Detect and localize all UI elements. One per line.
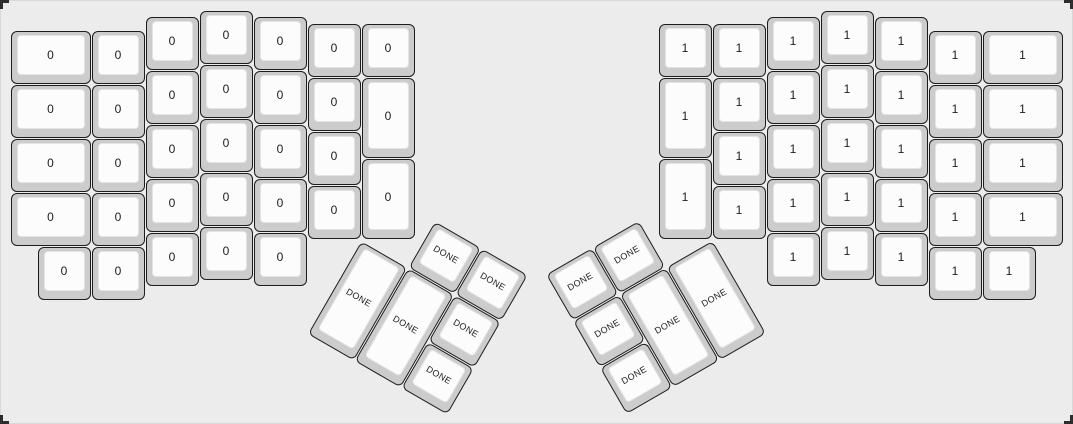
key-1[interactable]: 1	[766, 179, 820, 233]
key-label: 1	[898, 89, 905, 101]
keycap-base: 0	[146, 71, 199, 124]
key-label: 0	[277, 143, 284, 155]
key-label: 1	[790, 143, 797, 155]
key-label: 1	[682, 110, 689, 122]
keycap-base: 1	[875, 17, 928, 70]
key-label: 1	[790, 89, 797, 101]
keycap-base: 1	[875, 233, 928, 286]
keycap-top-surface: 1	[881, 75, 922, 115]
key-label: 0	[331, 150, 338, 162]
key-label: 0	[115, 211, 122, 223]
key-0[interactable]: 0	[253, 179, 307, 233]
key-label: 1	[1019, 103, 1026, 115]
keycap-top-surface: 1	[719, 136, 760, 176]
key-label: 1	[844, 83, 851, 95]
keycap-top-surface: 1	[665, 28, 706, 68]
key-1[interactable]: 1	[712, 132, 766, 186]
keycap-top-surface: 1	[935, 35, 976, 75]
key-0[interactable]: 0	[361, 159, 415, 240]
key-label: DONE	[391, 314, 419, 336]
keycap-base: 1	[821, 11, 874, 64]
key-0[interactable]: 0	[10, 84, 91, 138]
keycap-base: 1	[983, 31, 1063, 84]
keycap-base: 1	[875, 125, 928, 178]
key-label: 0	[115, 265, 122, 277]
keycap-base: 1	[713, 78, 766, 131]
keycap-top-surface: 1	[773, 21, 814, 61]
key-1[interactable]: 1	[820, 10, 874, 64]
keycap-top-surface: 0	[260, 75, 301, 115]
key-0[interactable]: 0	[307, 186, 361, 240]
key-label: DONE	[432, 244, 460, 266]
keycap-top-surface: 0	[260, 21, 301, 61]
key-0[interactable]: 0	[253, 125, 307, 179]
keycap-base: 0	[11, 85, 91, 138]
corner-mark-top-right	[1064, 0, 1073, 9]
keycap-top-surface: 0	[152, 129, 193, 169]
key-label: 1	[952, 103, 959, 115]
keycap-top-surface: 0	[368, 28, 409, 68]
key-1[interactable]: 1	[820, 64, 874, 118]
key-label: 1	[736, 150, 743, 162]
key-1[interactable]: 1	[982, 192, 1063, 246]
keycap-top-surface: 0	[206, 69, 247, 109]
key-label: 1	[736, 204, 743, 216]
keycap-base: 1	[929, 139, 982, 192]
key-label: 1	[1019, 211, 1026, 223]
key-label: 1	[790, 197, 797, 209]
key-label: 1	[1006, 265, 1013, 277]
key-label: DONE	[478, 271, 506, 293]
keycap-base: 0	[200, 11, 253, 64]
key-label: 0	[385, 110, 392, 122]
key-1[interactable]: 1	[712, 24, 766, 78]
key-label: 1	[682, 191, 689, 203]
keycap-top-surface: 0	[314, 28, 355, 68]
key-1[interactable]: 1	[766, 125, 820, 179]
key-label: 1	[790, 35, 797, 47]
keycap-top-surface: 0	[206, 231, 247, 271]
key-label: 1	[952, 157, 959, 169]
keycap-base: 1	[767, 125, 820, 178]
keycap-base: 1	[767, 233, 820, 286]
keycap-top-surface: 1	[773, 237, 814, 277]
key-label: 1	[898, 143, 905, 155]
keycap-top-surface: 1	[881, 21, 922, 61]
key-0[interactable]: 0	[91, 192, 145, 246]
keycap-top-surface: 1	[935, 251, 976, 291]
keycap-top-surface: 1	[773, 75, 814, 115]
keycap-top-surface: 0	[152, 75, 193, 115]
key-label: 1	[844, 29, 851, 41]
key-label: DONE	[566, 271, 594, 293]
keycap-base: 0	[146, 233, 199, 286]
key-0[interactable]: 0	[199, 172, 253, 226]
keycap-base: 0	[92, 247, 145, 300]
key-label: 0	[223, 83, 230, 95]
keycap-base: 0	[362, 78, 415, 158]
keycap-base: 0	[92, 31, 145, 84]
keycap-base: 0	[254, 125, 307, 178]
keycap-top-surface: 0	[260, 129, 301, 169]
keycap-top-surface: 1	[989, 89, 1057, 129]
keycap-base: 1	[929, 85, 982, 138]
key-label: DONE	[653, 314, 681, 336]
keycap-base: 1	[821, 227, 874, 280]
key-1[interactable]: 1	[658, 78, 712, 159]
keycap-top-surface: 1	[773, 129, 814, 169]
key-0[interactable]: 0	[145, 179, 199, 233]
key-1[interactable]: 1	[820, 118, 874, 172]
key-label: 0	[47, 49, 54, 61]
keycap-top-surface: 1	[989, 197, 1057, 237]
key-label: 0	[169, 251, 176, 263]
keycap-top-surface: 0	[206, 15, 247, 55]
key-label: 0	[169, 89, 176, 101]
key-1[interactable]: 1	[874, 233, 928, 287]
keycap-base: 1	[875, 71, 928, 124]
key-1[interactable]: 1	[712, 186, 766, 240]
key-0[interactable]: 0	[91, 30, 145, 84]
key-1[interactable]: 1	[928, 138, 982, 192]
keycap-base: 1	[713, 186, 766, 239]
keycap-top-surface: 1	[935, 89, 976, 129]
keycap-base: 0	[92, 85, 145, 138]
keycap-top-surface: DONE	[465, 254, 521, 309]
keycap-base: 1	[821, 119, 874, 172]
key-0[interactable]: 0	[37, 246, 91, 300]
key-0[interactable]: 0	[307, 78, 361, 132]
keycap-base: 0	[308, 132, 361, 185]
key-1[interactable]: 1	[874, 71, 928, 125]
keycap-top-surface: 0	[98, 197, 139, 237]
keycap-top-surface: 0	[152, 21, 193, 61]
keycap-top-surface: 1	[935, 143, 976, 183]
key-0[interactable]: 0	[145, 17, 199, 71]
key-label: 1	[790, 251, 797, 263]
keycap-top-surface: 1	[935, 197, 976, 237]
key-0[interactable]: 0	[145, 233, 199, 287]
key-0[interactable]: 0	[199, 10, 253, 64]
keycap-base: 1	[659, 159, 712, 239]
key-label: 0	[385, 191, 392, 203]
keycap-top-surface: 1	[827, 177, 868, 217]
key-label: 1	[736, 96, 743, 108]
key-label: 0	[115, 49, 122, 61]
key-label: 0	[223, 245, 230, 257]
keycap-base: 1	[767, 179, 820, 232]
keycap-top-surface: 1	[827, 123, 868, 163]
key-0[interactable]: 0	[253, 71, 307, 125]
key-label: 0	[223, 29, 230, 41]
keycap-base: 1	[929, 31, 982, 84]
key-label: DONE	[593, 317, 621, 339]
keycap-top-surface: 0	[152, 237, 193, 277]
key-0[interactable]: 0	[10, 30, 91, 84]
keycap-top-surface: 0	[98, 251, 139, 291]
keycap-top-surface: 0	[44, 251, 85, 291]
key-label: 0	[277, 35, 284, 47]
keycap-base: 0	[362, 159, 415, 239]
key-0[interactable]: 0	[91, 84, 145, 138]
key-1[interactable]: 1	[982, 138, 1063, 192]
key-0[interactable]: 0	[10, 192, 91, 246]
key-0[interactable]: 0	[10, 138, 91, 192]
keycap-base: 0	[38, 247, 91, 300]
keycap-top-surface: 0	[98, 89, 139, 129]
keycap-top-surface: 0	[368, 163, 409, 230]
keycap-base: 1	[929, 247, 982, 300]
key-label: 1	[952, 265, 959, 277]
key-0[interactable]: 0	[91, 246, 145, 300]
keycap-top-surface: 1	[881, 237, 922, 277]
keycap-base: 1	[983, 247, 1036, 300]
keycap-top-surface: 1	[881, 183, 922, 223]
key-label: 0	[61, 265, 68, 277]
keycap-base: 0	[146, 17, 199, 70]
keycap-top-surface: 0	[206, 123, 247, 163]
keycap-top-surface: 0	[314, 82, 355, 122]
keycap-base: 0	[308, 186, 361, 239]
keycap-base: 0	[254, 233, 307, 286]
keycap-top-surface: 0	[314, 136, 355, 176]
keycap-top-surface: 0	[260, 237, 301, 277]
key-label: 1	[898, 35, 905, 47]
keycap-base: 0	[11, 139, 91, 192]
key-1[interactable]: 1	[658, 159, 712, 240]
keycap-base: 0	[200, 173, 253, 226]
keycap-base: 1	[875, 179, 928, 232]
key-label: 1	[898, 197, 905, 209]
keycap-base: 1	[659, 78, 712, 158]
keycap-top-surface: 0	[260, 183, 301, 223]
key-0[interactable]: 0	[307, 24, 361, 78]
key-0[interactable]: 0	[307, 132, 361, 186]
key-0[interactable]: 0	[199, 118, 253, 172]
keycap-base: 0	[308, 24, 361, 77]
corner-mark-bottom-right	[1064, 415, 1073, 424]
keycap-top-surface: 1	[827, 69, 868, 109]
key-1[interactable]: 1	[982, 246, 1036, 300]
keycap-top-surface: 1	[665, 163, 706, 230]
keycap-top-surface: 1	[719, 190, 760, 230]
key-1[interactable]: 1	[712, 78, 766, 132]
keycap-base: 1	[713, 24, 766, 77]
key-1[interactable]: 1	[928, 246, 982, 300]
key-label: 0	[47, 157, 54, 169]
keycap-top-surface: 1	[773, 183, 814, 223]
key-0[interactable]: 0	[361, 24, 415, 78]
keycap-base: 1	[767, 17, 820, 70]
key-label: 0	[385, 42, 392, 54]
keycap-base: 1	[821, 173, 874, 226]
keycap-top-surface: DONE	[599, 227, 655, 282]
key-label: 1	[844, 137, 851, 149]
key-label: 0	[223, 137, 230, 149]
keycap-base: 0	[362, 24, 415, 77]
keycap-top-surface: 0	[206, 177, 247, 217]
key-1[interactable]: 1	[820, 172, 874, 226]
keycap-top-surface: 0	[314, 190, 355, 230]
key-0[interactable]: 0	[199, 64, 253, 118]
keycap-base: 1	[659, 24, 712, 77]
corner-mark-bottom-left	[0, 415, 9, 424]
keycap-top-surface: 1	[989, 251, 1030, 291]
key-label: 0	[47, 103, 54, 115]
key-1[interactable]: 1	[982, 84, 1063, 138]
key-1[interactable]: 1	[820, 226, 874, 280]
keycap-base: 1	[983, 139, 1063, 192]
key-label: 1	[952, 49, 959, 61]
keycap-top-surface: 1	[827, 231, 868, 271]
keycap-top-surface: 1	[719, 82, 760, 122]
keycap-top-surface: 0	[98, 35, 139, 75]
key-label: 0	[169, 35, 176, 47]
key-label: 0	[115, 103, 122, 115]
key-0[interactable]: 0	[145, 125, 199, 179]
keycap-base: 0	[92, 139, 145, 192]
key-label: DONE	[344, 287, 372, 309]
keycap-top-surface: 0	[17, 35, 85, 75]
key-1[interactable]: 1	[874, 17, 928, 71]
key-label: 0	[169, 143, 176, 155]
key-1[interactable]: 1	[928, 30, 982, 84]
keycap-base: 0	[200, 119, 253, 172]
key-label: 0	[115, 157, 122, 169]
keycap-top-surface: 0	[152, 183, 193, 223]
key-0[interactable]: 0	[361, 78, 415, 159]
keycap-base: 0	[200, 227, 253, 280]
keycap-base: 0	[254, 17, 307, 70]
key-1[interactable]: 1	[766, 71, 820, 125]
keyboard-canvas: 00000000000000000000000000000000DONEDONE…	[0, 0, 1073, 424]
key-label: 1	[952, 211, 959, 223]
keycap-top-surface: 1	[989, 35, 1057, 75]
key-0[interactable]: 0	[199, 226, 253, 280]
keycap-base: 1	[983, 193, 1063, 246]
keycap-base: 1	[929, 193, 982, 246]
key-label: 0	[277, 89, 284, 101]
key-label: DONE	[424, 364, 452, 386]
key-label: 0	[277, 251, 284, 263]
key-label: 1	[1019, 49, 1026, 61]
key-label: 1	[1019, 157, 1026, 169]
keycap-base: 0	[146, 179, 199, 232]
keycap-base: 0	[92, 193, 145, 246]
key-label: 1	[682, 42, 689, 54]
key-1[interactable]: 1	[766, 17, 820, 71]
key-1[interactable]: 1	[928, 192, 982, 246]
key-0[interactable]: 0	[145, 71, 199, 125]
key-label: DONE	[613, 244, 641, 266]
key-0[interactable]: 0	[91, 138, 145, 192]
keycap-top-surface: 1	[881, 129, 922, 169]
key-1[interactable]: 1	[874, 125, 928, 179]
keycap-top-surface: 0	[17, 89, 85, 129]
keycap-base: 1	[821, 65, 874, 118]
keycap-base: 0	[200, 65, 253, 118]
key-label: 0	[331, 96, 338, 108]
key-label: 1	[736, 42, 743, 54]
keycap-top-surface: 0	[17, 143, 85, 183]
keycap-base: 0	[254, 179, 307, 232]
keycap-base: 0	[308, 78, 361, 131]
key-1[interactable]: 1	[874, 179, 928, 233]
key-label: 0	[47, 211, 54, 223]
key-1[interactable]: 1	[766, 233, 820, 287]
key-label: 0	[331, 42, 338, 54]
key-label: DONE	[451, 317, 479, 339]
key-label: DONE	[620, 364, 648, 386]
keycap-top-surface: 1	[989, 143, 1057, 183]
key-label: 0	[169, 197, 176, 209]
keycap-base: 0	[146, 125, 199, 178]
keycap-base: 0	[11, 31, 91, 84]
keycap-top-surface: 1	[827, 15, 868, 55]
key-label: DONE	[700, 287, 728, 309]
key-1[interactable]: 1	[982, 30, 1063, 84]
key-0[interactable]: 0	[253, 233, 307, 287]
key-label: 1	[844, 245, 851, 257]
key-label: 0	[223, 191, 230, 203]
keycap-top-surface: 0	[368, 82, 409, 149]
corner-mark-top-left	[0, 0, 9, 9]
keycap-top-surface: 1	[665, 82, 706, 149]
key-label: 1	[898, 251, 905, 263]
keycap-base: 1	[713, 132, 766, 185]
key-1[interactable]: 1	[658, 24, 712, 78]
key-0[interactable]: 0	[253, 17, 307, 71]
keycap-base: 1	[767, 71, 820, 124]
keycap-base: 1	[983, 85, 1063, 138]
keycap-base: 0	[254, 71, 307, 124]
key-label: 0	[331, 204, 338, 216]
keycap-top-surface: 0	[17, 197, 85, 237]
key-label: 0	[277, 197, 284, 209]
key-label: 1	[844, 191, 851, 203]
keycap-base: 0	[11, 193, 91, 246]
key-1[interactable]: 1	[928, 84, 982, 138]
keycap-top-surface: 1	[719, 28, 760, 68]
keycap-top-surface: 0	[98, 143, 139, 183]
